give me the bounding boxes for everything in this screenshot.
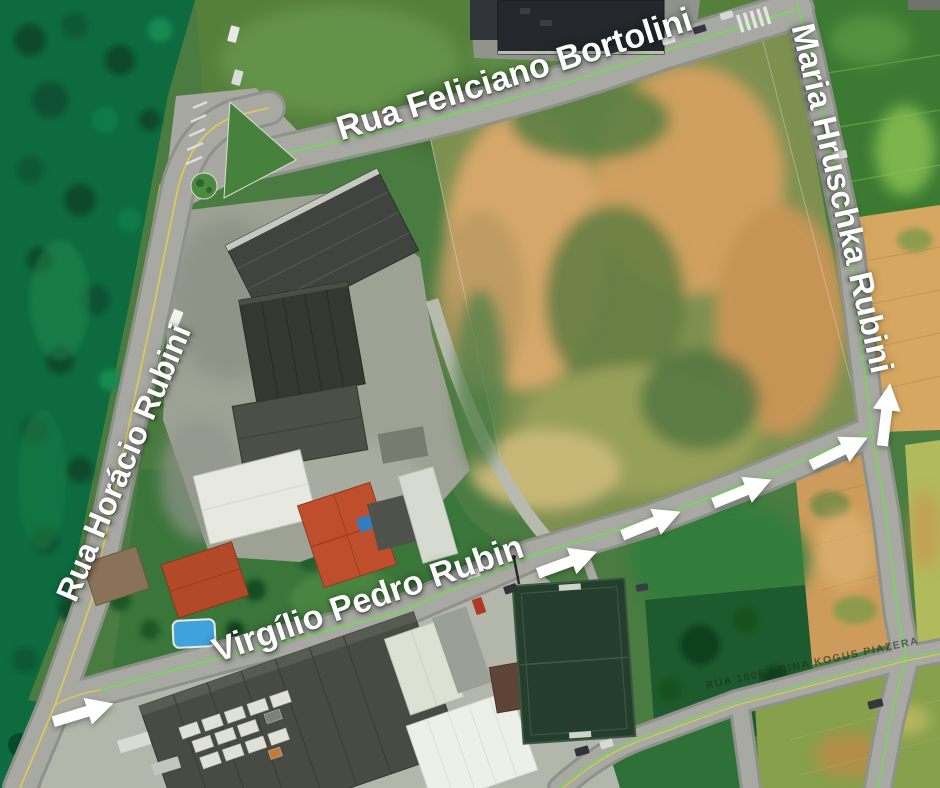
map-viewport: Rua Feliciano Bortolini Maria Hruschka R… <box>0 0 940 788</box>
sports-court <box>513 578 636 743</box>
